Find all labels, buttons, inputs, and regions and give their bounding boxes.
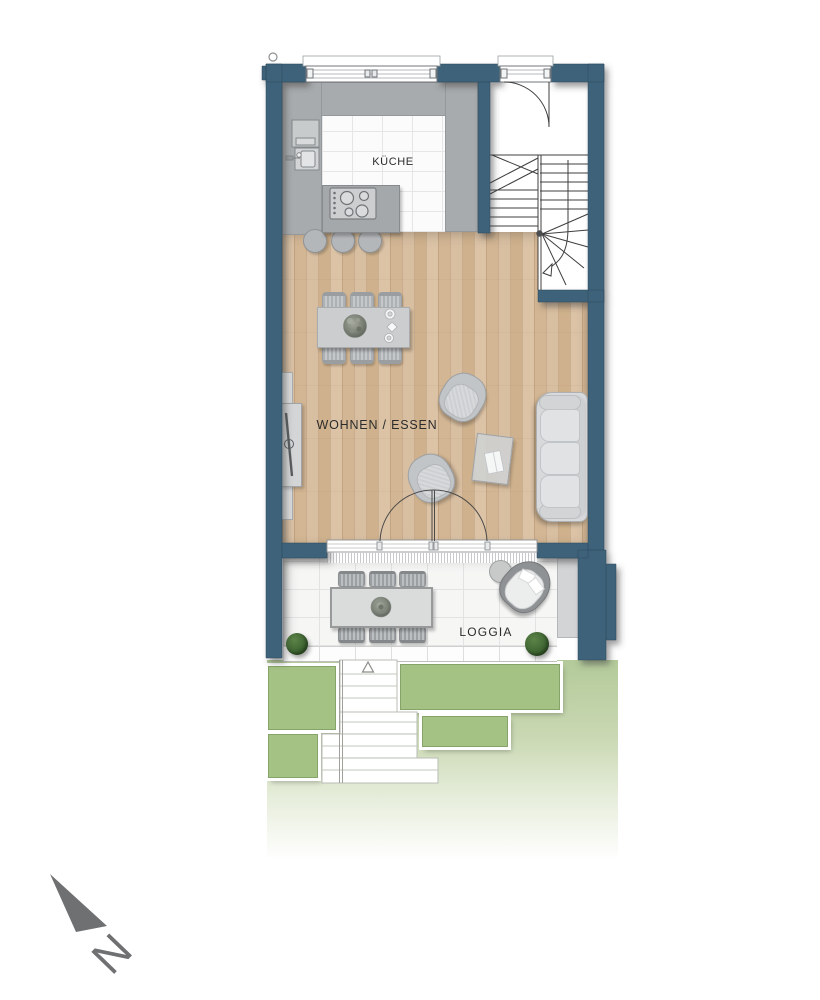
kitchen-window: [303, 56, 440, 82]
survey-marker: [269, 53, 277, 61]
entry-door-swing: [504, 82, 549, 127]
plan-linework: N: [0, 0, 820, 1000]
place-settings: [385, 309, 398, 343]
room-label-living-dining: WOHNEN / ESSEN: [317, 418, 438, 432]
french-door-swing: [380, 490, 487, 541]
north-arrow: N: [50, 874, 142, 984]
loggia-table-plant: [371, 597, 391, 617]
sink: [286, 120, 319, 170]
room-label-loggia: LOGGIA: [459, 625, 512, 639]
room-label-kitchen: KÜCHE: [372, 156, 414, 168]
entry-door: [498, 56, 553, 82]
faucet: [286, 156, 293, 160]
loggia-glazing: [327, 540, 537, 552]
tv: [285, 413, 294, 476]
north-letter: N: [81, 924, 141, 984]
stair-newel: [536, 230, 542, 236]
table-plant: [344, 315, 367, 338]
floor-plan: N KÜCHE WOHNEN / ESSEN LOGGIA: [0, 0, 820, 1000]
cooktop: [330, 188, 376, 219]
